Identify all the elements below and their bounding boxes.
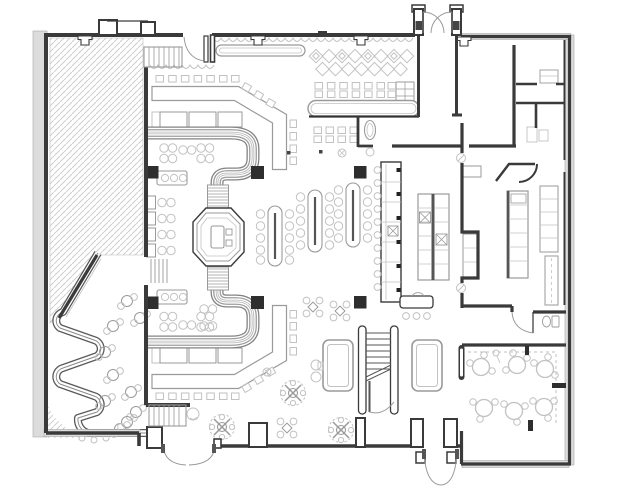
upper-banquette-bar	[146, 76, 297, 209]
wall-pier	[356, 418, 365, 447]
wall-sconce	[354, 36, 368, 45]
stair-break-line	[366, 365, 391, 381]
west-entry	[144, 35, 215, 67]
bar-stool-rows	[315, 83, 396, 98]
service-bar-return	[400, 296, 433, 308]
entry-steps	[144, 47, 182, 67]
cookline-counter	[418, 194, 449, 280]
bar-counter	[308, 101, 419, 117]
door-leaf	[423, 12, 452, 33]
keynote-circle	[187, 408, 199, 420]
center-booth-pod	[193, 208, 244, 266]
door-swing	[163, 445, 215, 465]
pilaster-bump	[141, 22, 155, 35]
stair-treads	[366, 333, 391, 369]
wall-shelving	[540, 186, 558, 305]
lattice-screen	[309, 49, 414, 103]
threshold-stripes	[151, 259, 167, 283]
round-table	[470, 399, 499, 423]
lower-banquette-bar	[146, 267, 297, 400]
floor-plan-canvas: Restaurant and bar floor plan drawing Re…	[0, 0, 620, 497]
restroom	[512, 312, 559, 333]
door-swing	[184, 37, 204, 61]
stairwell	[359, 326, 399, 414]
southwest-entry	[147, 405, 221, 465]
round-table	[530, 398, 558, 422]
terrace-hatched-area	[48, 38, 143, 438]
service-bar	[374, 162, 433, 319]
kitchen-island	[507, 191, 528, 278]
four-top-tables	[118, 297, 350, 438]
communal-table	[296, 190, 333, 252]
wall-sconce	[457, 37, 471, 46]
entry-steps	[149, 405, 186, 426]
door-leaf	[204, 36, 208, 62]
pilaster-bump	[99, 20, 117, 35]
south-entry	[411, 419, 459, 485]
communal-table	[334, 183, 371, 247]
floor-plan-drawing: Restaurant and bar floor plan drawing	[0, 0, 620, 497]
door-jamb	[147, 427, 162, 448]
service-bar-stools	[374, 167, 381, 291]
billiard-tables	[318, 340, 442, 391]
communal-table	[256, 206, 293, 266]
prep-counter	[463, 166, 481, 177]
lounge-tables	[79, 294, 150, 443]
wall-table-column	[147, 196, 176, 283]
top-bar	[308, 83, 419, 143]
round-table	[501, 401, 529, 426]
floor-medallions	[209, 380, 353, 442]
pod-table	[211, 226, 224, 248]
wall-tick	[318, 31, 327, 37]
toilet-bowl	[543, 316, 551, 327]
top-wall-bench	[216, 45, 305, 56]
backroom-fixtures	[527, 70, 558, 142]
round-table	[467, 352, 496, 376]
north-entry-vestibule	[412, 5, 463, 117]
toilet-tank	[552, 316, 559, 327]
door-swing	[423, 12, 452, 33]
bar-stools-south	[314, 127, 358, 143]
round-table	[531, 354, 559, 379]
wall-pier	[249, 423, 267, 447]
wall-jog-counter	[463, 234, 477, 278]
restroom-door-swing	[512, 312, 533, 333]
private-dining-room	[467, 350, 559, 426]
communal-tables	[256, 183, 371, 266]
